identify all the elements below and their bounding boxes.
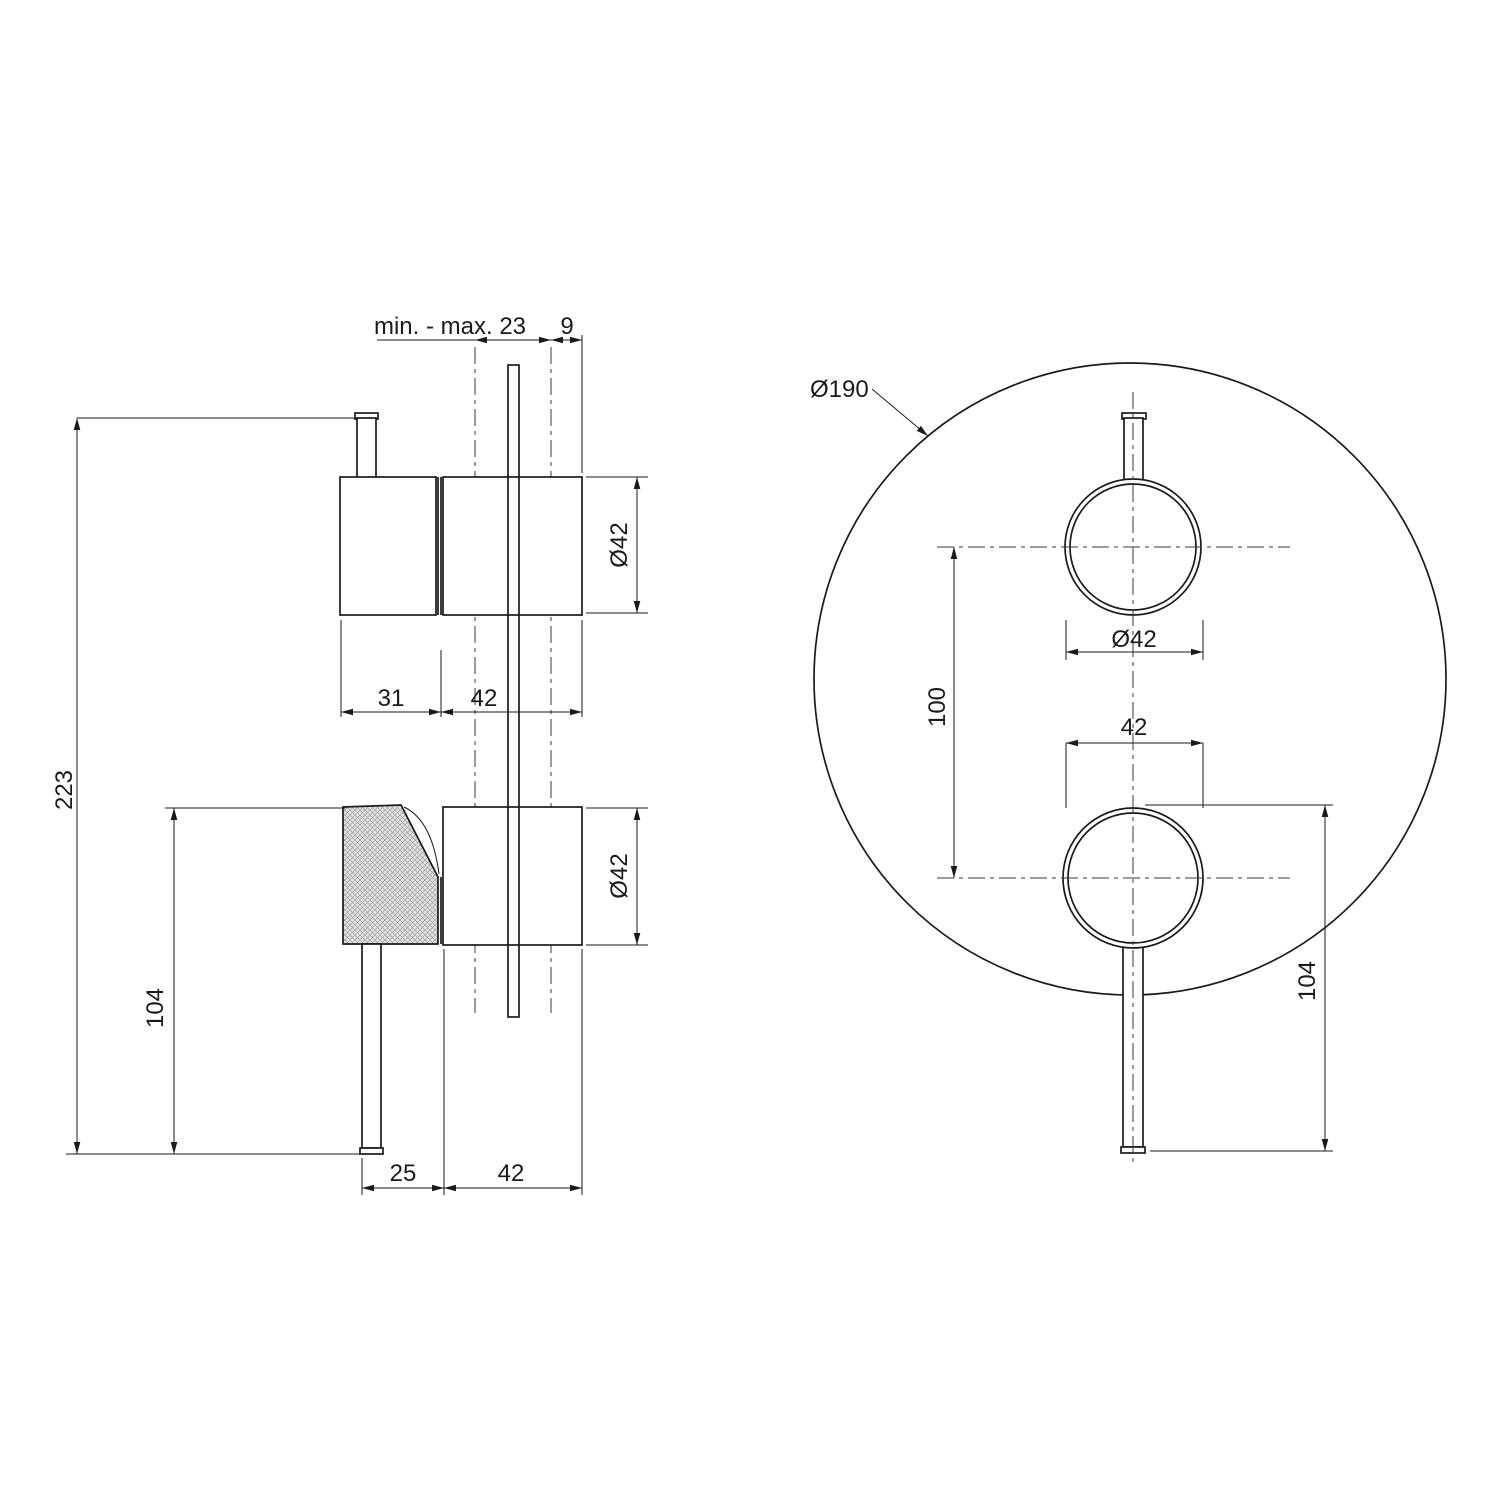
dim-knob-dia-top-label: Ø42 [606,522,633,567]
side-view: min. - max. 23 9 223 104 Ø42 31 42 Ø42 [51,313,648,1195]
dim-knob-dia-front-label: Ø42 [1111,626,1156,653]
dim-handle-height-label: 104 [142,988,169,1028]
dim-body-len-bottom-label: 42 [498,1160,525,1187]
dim-knob-len-label: 31 [378,685,405,712]
dim-lever-offset-label: 25 [390,1160,417,1187]
cad-drawing: min. - max. 23 9 223 104 Ø42 31 42 Ø42 [0,0,1500,1500]
dim-knob-dia-bottom-label: Ø42 [606,853,633,898]
dim-knob-width-label: 42 [1121,714,1148,741]
dim-lever-drop-label: 104 [1294,961,1321,1001]
dim-total-height-label: 223 [51,770,78,810]
dim-wall-range-label: min. - max. 23 [374,313,526,340]
drawing-page: min. - max. 23 9 223 104 Ø42 31 42 Ø42 [0,0,1500,1500]
side-lever [362,944,381,1148]
front-view: Ø190 100 Ø42 42 104 [810,363,1446,1162]
side-top-knob [340,477,436,615]
dim-knob-spacing-label: 100 [924,687,951,727]
leader-plate-dia [872,389,928,436]
side-bottom-body [443,807,582,945]
side-lever-cap [360,1148,383,1154]
dim-plate-offset-label: 9 [560,313,573,340]
dim-plate-dia-label: Ø190 [810,376,869,403]
dim-body-len-top-label: 42 [471,685,498,712]
side-top-stem [357,418,376,478]
side-top-body [443,477,582,615]
